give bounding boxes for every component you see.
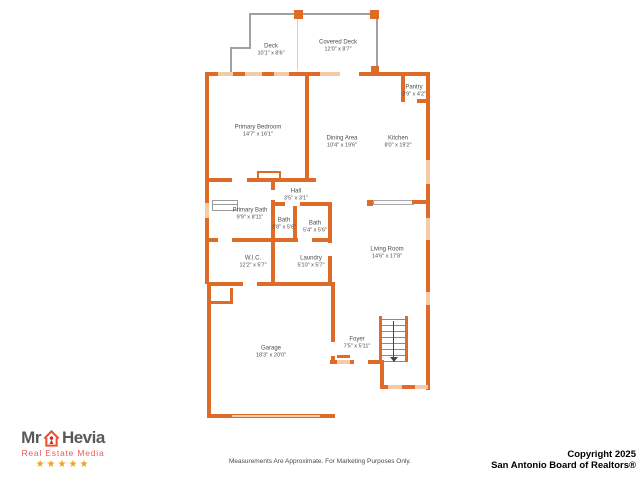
window	[245, 72, 262, 76]
staircase	[382, 319, 405, 362]
room-label-kitchen: Kitchen 8'0" x 19'2"	[384, 135, 411, 150]
window	[426, 160, 430, 184]
room-label-laundry: Laundry 5'10" x 5'7"	[297, 255, 324, 270]
wall	[257, 282, 335, 286]
deck-outline-left-upper	[249, 13, 251, 47]
room-label-dining-area: Dining Area 10'4" x 19'6"	[326, 135, 357, 150]
room-name: Deck	[257, 43, 284, 51]
copyright-line2: San Antonio Board of Realtors®	[491, 460, 636, 471]
wall	[350, 360, 354, 364]
logo-text-mr: Mr	[21, 428, 41, 448]
room-label-wic: W.I.C. 12'2" x 5'7"	[239, 255, 266, 270]
house-icon	[42, 429, 61, 448]
closet-wall	[257, 171, 281, 173]
logo: Mr Hevia Real Estate Media ★★★★★	[8, 428, 118, 470]
stair-arrowhead	[390, 357, 398, 362]
room-name: Living Room	[370, 246, 403, 254]
wall	[271, 242, 275, 286]
room-dims: 12'0" x 8'7"	[319, 47, 357, 54]
counter	[373, 200, 414, 205]
room-dims: 5'4" x 5'6"	[303, 228, 327, 235]
room-dims: 10'1" x 8'6"	[257, 51, 284, 58]
room-label-hall: Hall 3'5" x 3'1"	[284, 188, 308, 203]
deck-outline-top	[249, 13, 378, 15]
wall	[412, 200, 430, 204]
deck-post	[294, 10, 303, 19]
room-label-bath-wc: Bath 3'8" x 5'6"	[272, 217, 296, 232]
wall	[331, 286, 335, 342]
room-name: W.I.C.	[239, 255, 266, 263]
wall	[359, 72, 430, 76]
room-label-garage: Garage 18'3" x 20'0"	[256, 345, 286, 360]
room-dims: 12'2" x 5'7"	[239, 263, 266, 270]
stair-direction-arrow	[393, 321, 394, 358]
window	[388, 385, 402, 389]
wall	[207, 284, 211, 418]
logo-wordmark: Mr Hevia	[8, 428, 118, 448]
room-label-primary-bedroom: Primary Bedroom 14'7" x 16'1"	[235, 124, 282, 139]
room-name: Covered Deck	[319, 39, 357, 47]
deck-divider	[297, 15, 298, 70]
window	[426, 292, 430, 305]
deck-post	[370, 10, 379, 19]
closet-wall	[279, 171, 281, 179]
utility-closet-wall	[211, 301, 233, 304]
room-label-living-room: Living Room 14'6" x 17'8"	[370, 246, 403, 261]
deck-outline-left-lower	[230, 47, 232, 72]
wall	[328, 256, 332, 284]
room-name: Laundry	[297, 255, 324, 263]
room-name: Primary Bath	[233, 207, 268, 215]
wall	[305, 76, 309, 182]
wall	[417, 99, 430, 103]
room-dims: 3'5" x 3'1"	[284, 196, 308, 203]
window	[274, 72, 289, 76]
covered-deck-outline-right	[376, 13, 378, 72]
room-dims: 5'10" x 5'7"	[297, 263, 324, 270]
closet-wall	[257, 171, 259, 179]
wall	[312, 238, 332, 242]
wall	[232, 238, 298, 242]
window	[218, 72, 233, 76]
door	[337, 355, 350, 358]
wall	[209, 282, 243, 286]
room-name: Garage	[256, 345, 286, 353]
disclaimer-text: Measurements Are Approximate. For Market…	[170, 458, 470, 465]
room-name: Bath	[272, 217, 296, 225]
room-dims: 14'6" x 17'8"	[370, 254, 403, 261]
room-dims: 18'3" x 20'0"	[256, 353, 286, 360]
star-rating: ★★★★★	[8, 459, 118, 470]
wall	[209, 238, 218, 242]
floor-plan-sheet: Deck 10'1" x 8'6" Covered Deck 12'0" x 8…	[0, 0, 640, 480]
room-name: Kitchen	[384, 135, 411, 143]
window	[415, 385, 428, 389]
room-name: Foyer	[344, 336, 371, 344]
room-name: Primary Bedroom	[235, 124, 282, 132]
room-dims: 9'9" x 8'11"	[233, 215, 268, 222]
room-name: Pantry	[402, 84, 426, 92]
room-name: Dining Area	[326, 135, 357, 143]
room-name: Hall	[284, 188, 308, 196]
room-label-pantry: Pantry 3'9" x 4'2"	[402, 84, 426, 99]
window	[320, 72, 340, 76]
room-dims: 14'7" x 16'1"	[235, 132, 282, 139]
deck-outline-step	[230, 47, 251, 49]
logo-text-hevia: Hevia	[62, 428, 105, 448]
stair-wall	[405, 316, 408, 362]
room-name: Bath	[303, 220, 327, 228]
room-label-bath: Bath 5'4" x 5'6"	[303, 220, 327, 235]
wall	[209, 178, 232, 182]
room-label-covered-deck: Covered Deck 12'0" x 8'7"	[319, 39, 357, 54]
wall	[271, 182, 275, 190]
window	[426, 218, 430, 240]
room-dims: 8'0" x 19'2"	[384, 143, 411, 150]
front-door-opening	[337, 360, 350, 364]
copyright-text: Copyright 2025 San Antonio Board of Real…	[491, 449, 636, 471]
wall	[330, 360, 337, 364]
garage-door	[232, 415, 320, 417]
room-dims: 3'8" x 5'6"	[272, 225, 296, 232]
room-dims: 3'9" x 4'2"	[402, 92, 426, 99]
room-label-deck: Deck 10'1" x 8'6"	[257, 43, 284, 58]
room-label-primary-bath: Primary Bath 9'9" x 8'11"	[233, 207, 268, 222]
copyright-line1: Copyright 2025	[491, 449, 636, 460]
window	[205, 203, 209, 218]
logo-tagline: Real Estate Media	[8, 448, 118, 458]
room-dims: 10'4" x 19'6"	[326, 143, 357, 150]
room-label-foyer: Foyer 7'5" x 5'11"	[344, 336, 371, 351]
room-dims: 7'5" x 5'11"	[344, 344, 371, 351]
